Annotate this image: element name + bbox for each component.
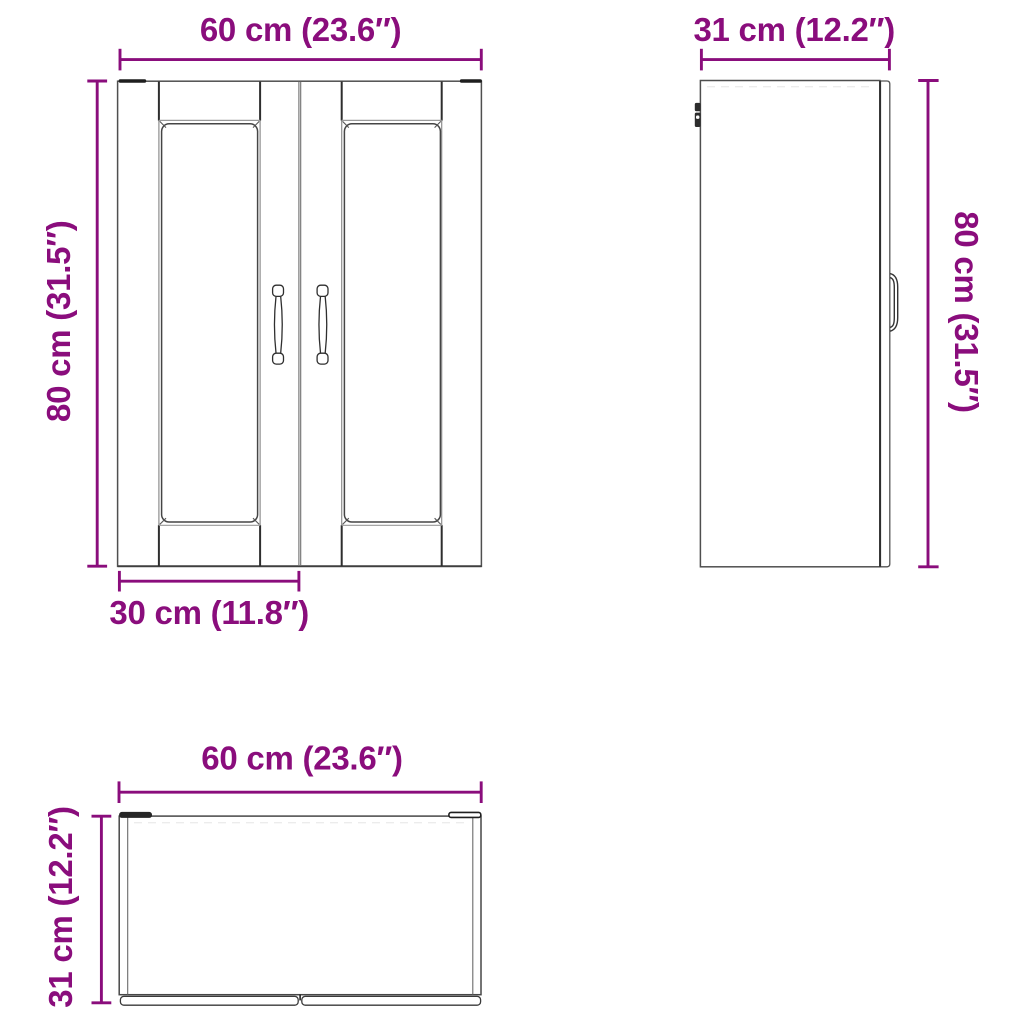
svg-text:80 cm (31.5″): 80 cm (31.5″) — [948, 211, 985, 413]
svg-text:80 cm (31.5″): 80 cm (31.5″) — [40, 220, 77, 422]
svg-text:31 cm (12.2″): 31 cm (12.2″) — [42, 806, 79, 1008]
svg-text:60 cm (23.6″): 60 cm (23.6″) — [201, 740, 403, 777]
svg-text:60 cm (23.6″): 60 cm (23.6″) — [200, 11, 402, 48]
svg-text:30 cm (11.8″): 30 cm (11.8″) — [109, 594, 309, 631]
svg-text:31 cm (12.2″): 31 cm (12.2″) — [693, 11, 895, 48]
